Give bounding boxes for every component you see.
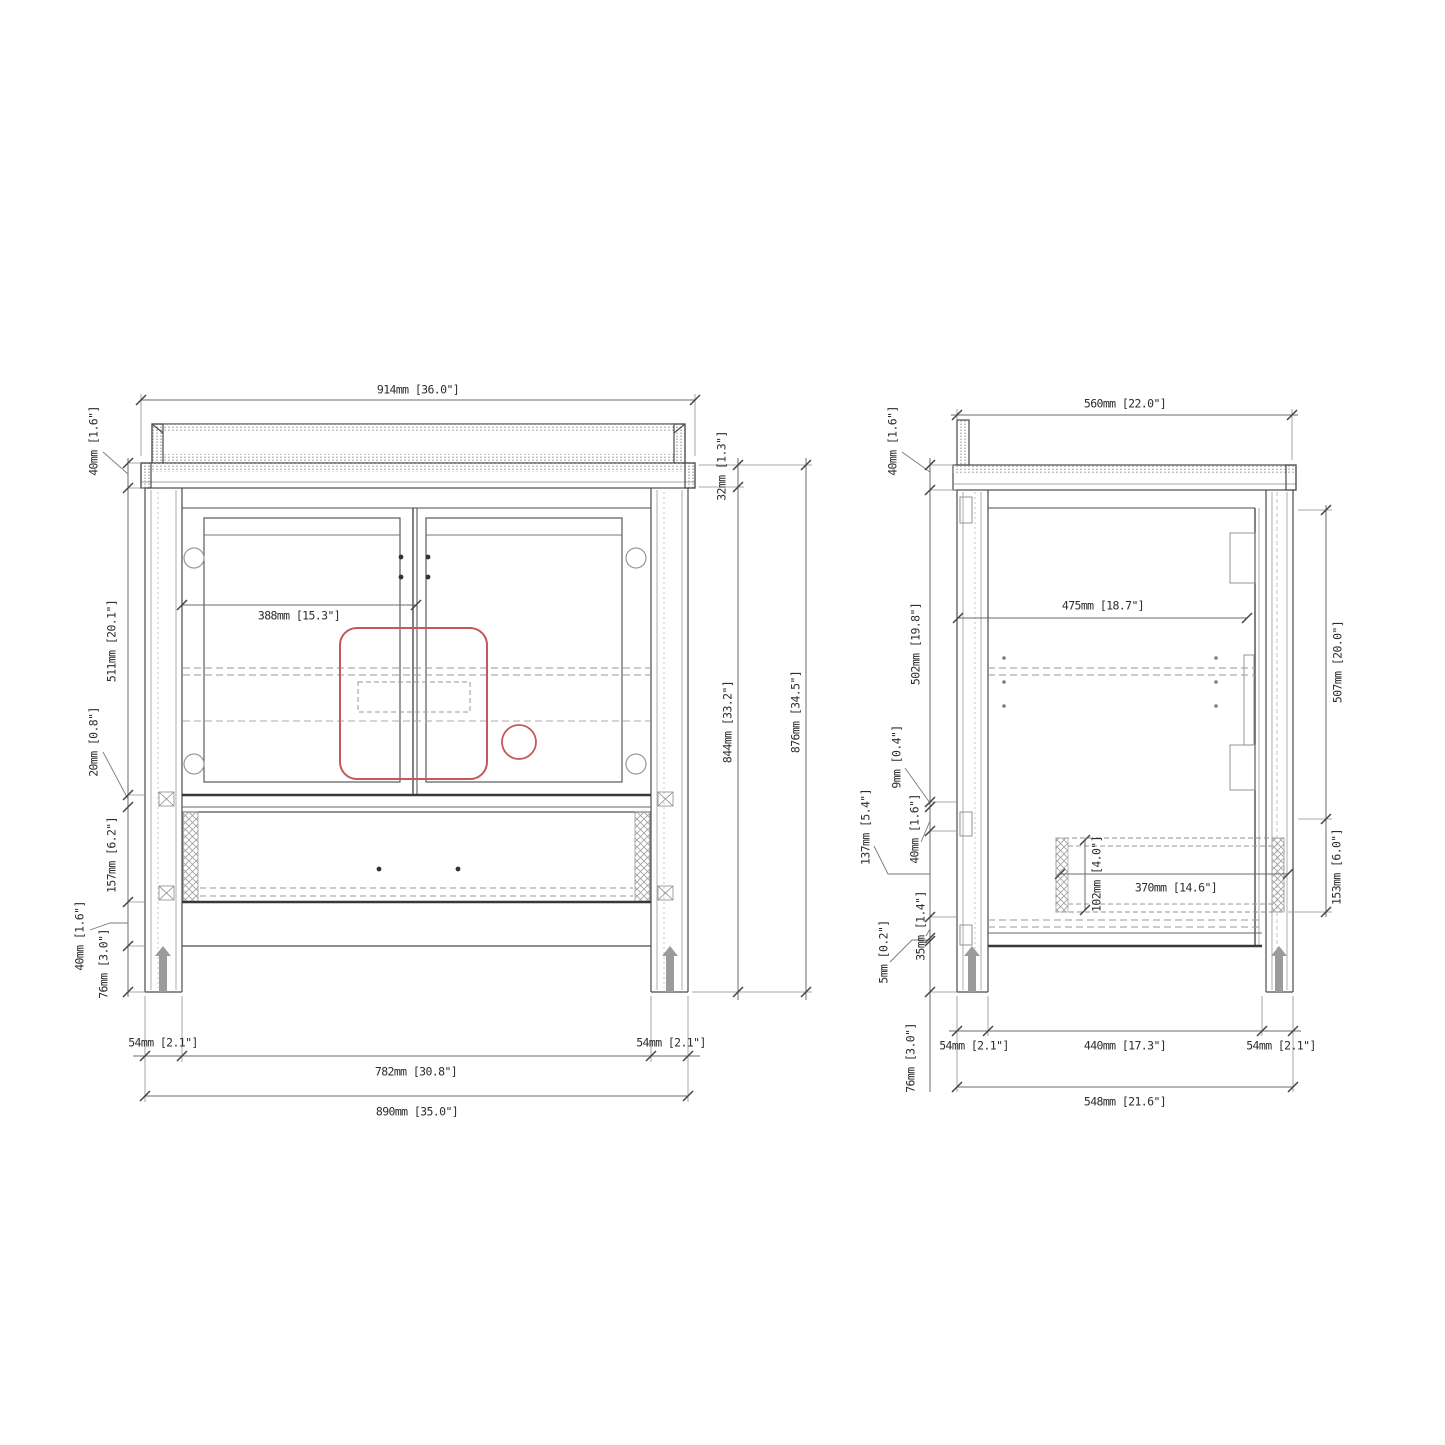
dim-front-sink-center-offset: 388mm [15.3"] [258,610,340,622]
dim-side-drawer-side-height: 102mm [4.0"] [1091,836,1103,912]
dim-front-countertop-thickness: 40mm [1.6"] [88,406,100,476]
dim-front-base-width: 890mm [35.0"] [376,1106,458,1118]
dim-side-countertop-thickness: 40mm [1.6"] [887,406,899,476]
side-view [953,420,1296,992]
dim-front-right-leg-width: 54mm [2.1"] [636,1037,706,1049]
dim-front-top-thickness: 32mm [1.3"] [716,431,728,501]
faucet-hole-outline [502,725,536,759]
front-bottom-rail [182,902,651,946]
dim-side-bottom-gap: 5mm [0.2"] [878,920,890,983]
front-feet [155,946,678,992]
side-countertop [953,465,1296,490]
dim-front-cabinet-body-height: 844mm [33.2"] [722,681,734,763]
leader-lines [90,452,930,962]
dim-front-overall-height: 876mm [34.5"] [790,671,802,753]
dim-side-overall-depth: 560mm [22.0"] [1084,398,1166,410]
front-joint-blocks [159,792,673,900]
front-view [141,424,695,992]
dim-side-drawer-box-height: 137mm [5.4"] [860,789,872,865]
dim-front-overall-width: 914mm [36.0"] [377,384,459,396]
side-bottom-rail [988,920,1262,946]
front-doors [182,508,651,795]
side-shelf-dashed [988,668,1255,675]
dim-front-bottom-rail-height: 40mm [1.6"] [74,901,86,971]
dim-side-foot-height: 76mm [3.0"] [905,1023,917,1093]
front-drawer [183,812,650,902]
dim-side-panel-gap: 9mm [0.4"] [891,725,903,788]
dim-front-inner-width: 782mm [30.8"] [375,1066,457,1078]
dim-front-mid-rail-height: 20mm [0.8"] [88,707,100,777]
sink-cutout-outline [340,628,536,779]
dim-side-back-leg-depth: 54mm [2.1"] [1246,1040,1316,1052]
front-mid-rail [182,795,651,807]
dim-side-front-leg-depth: 54mm [2.1"] [939,1040,1009,1052]
front-door-hinges [184,548,646,774]
dim-side-rail-height: 40mm [1.6"] [909,794,921,864]
dim-front-door-section-height: 511mm [20.1"] [106,600,118,682]
front-inner-dashed-box [358,682,470,712]
dim-side-base-depth: 548mm [21.6"] [1084,1096,1166,1108]
dim-side-door-panel-height: 507mm [20.0"] [1332,621,1344,703]
dim-side-shelf-thickness: 35mm [1.4"] [915,891,927,961]
side-backsplash [957,420,969,465]
side-feet [964,946,1287,992]
side-brackets [960,497,1255,945]
dim-side-interior-height: 502mm [19.8"] [910,603,922,685]
dim-side-interior-depth: 475mm [18.7"] [1062,600,1144,612]
dim-front-foot-height: 76mm [3.0"] [98,929,110,999]
front-countertop [141,463,695,488]
side-screw-dots [1002,656,1218,708]
front-backsplash [152,424,685,463]
side-legs [957,490,1293,992]
dim-front-left-leg-width: 54mm [2.1"] [128,1037,198,1049]
dim-side-drawer-front-height: 153mm [6.0"] [1331,829,1343,905]
technical-drawing-canvas: 914mm [36.0"] 40mm [1.6"] 511mm [20.1"] … [0,0,1445,1445]
dim-front-drawer-section-height: 157mm [6.2"] [106,817,118,893]
dim-side-leg-spacing: 440mm [17.3"] [1084,1040,1166,1052]
dim-side-drawer-depth: 370mm [14.6"] [1135,882,1217,894]
